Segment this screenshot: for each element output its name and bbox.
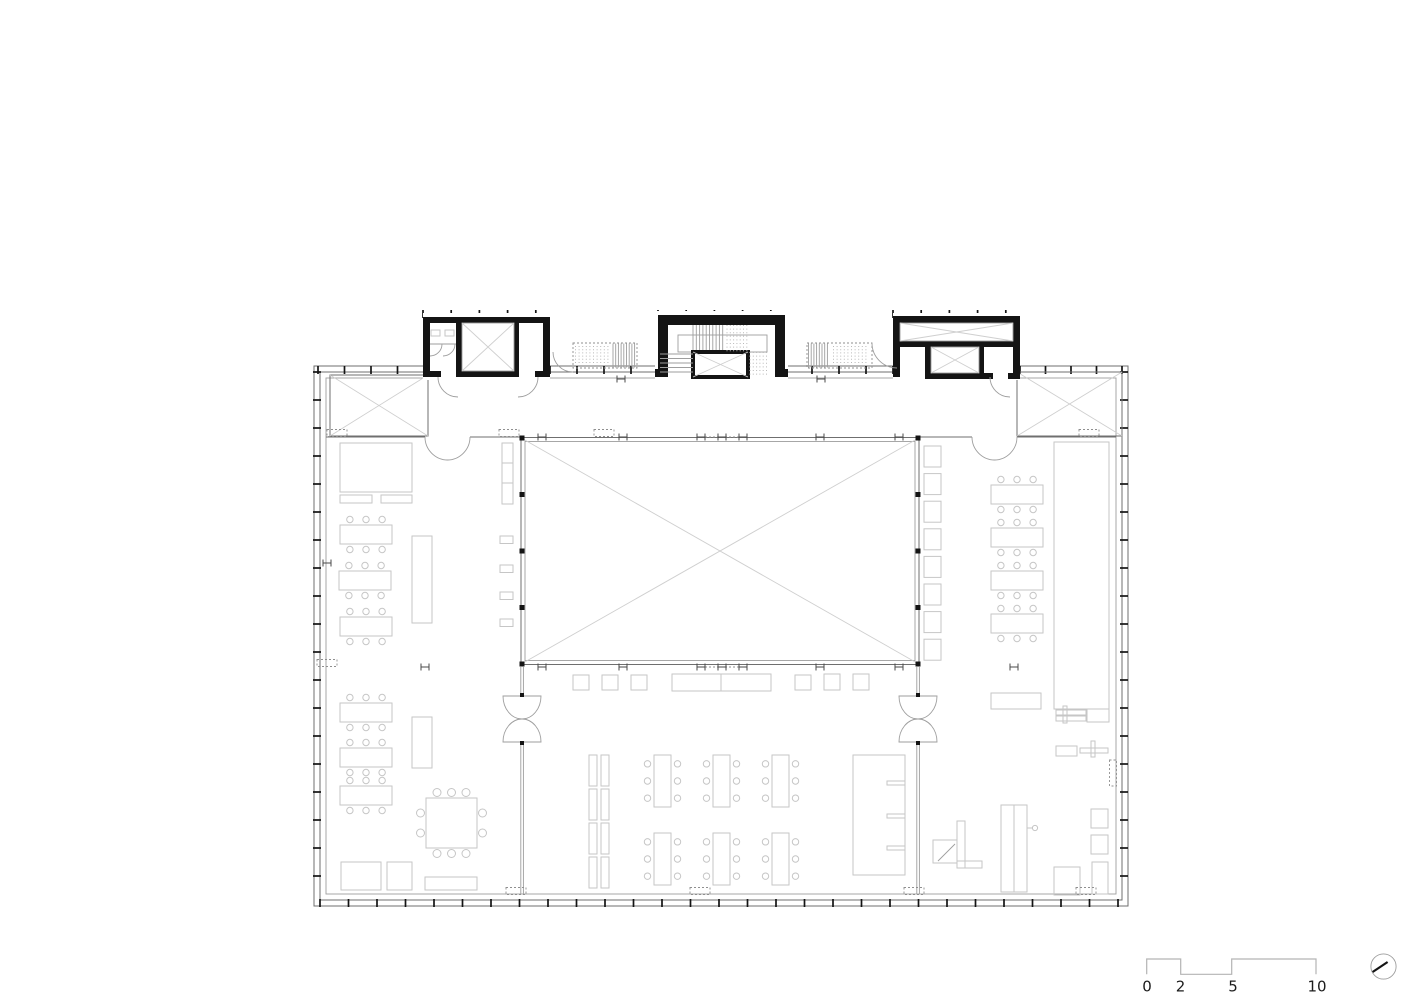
table-with-chairs <box>340 777 392 813</box>
scale-label-0: 0 <box>1142 978 1152 996</box>
double-door-right-partition <box>899 696 937 742</box>
door-post-squares <box>520 693 920 745</box>
desk-cluster <box>703 833 739 885</box>
stair-core-left <box>423 313 550 380</box>
table-with-chairs <box>340 608 392 644</box>
elevator-middle <box>693 352 748 377</box>
stair-core-middle <box>655 311 788 380</box>
floor-plan-page: 0 2 5 10 <box>0 0 1414 1000</box>
north-arrow-icon <box>1371 954 1396 979</box>
facade-mullion-ticks <box>313 310 1128 907</box>
study-desk-clusters <box>644 755 798 885</box>
equipment-bench-mid <box>1080 741 1108 757</box>
scale-label-2: 2 <box>1176 978 1186 996</box>
corner-room-left <box>330 375 428 436</box>
desk-cluster <box>762 755 798 807</box>
corner-workstation <box>933 821 982 868</box>
scale-label-5: 5 <box>1228 978 1238 996</box>
desk-cluster <box>703 755 739 807</box>
square-meeting-table <box>417 789 487 858</box>
workshop-counter <box>853 755 905 875</box>
partition-panels <box>589 755 609 888</box>
double-door-right-wing <box>972 437 1017 460</box>
interior-walls <box>326 437 1116 894</box>
facade-shell <box>314 314 1128 906</box>
scale-bar: 0 2 5 10 <box>1142 959 1326 996</box>
table-with-chairs <box>339 562 391 598</box>
desk-cluster <box>644 755 680 807</box>
table-with-chairs <box>991 605 1043 641</box>
table-with-chairs <box>340 516 392 552</box>
atrium <box>521 437 919 667</box>
desk-cluster <box>762 833 798 885</box>
corner-room-right <box>1017 372 1122 436</box>
right-wing-furniture <box>933 442 1109 895</box>
table-with-chairs <box>340 694 392 730</box>
table-with-chairs <box>991 519 1043 555</box>
beam-joint-markers <box>317 430 1117 895</box>
double-door-left-partition <box>503 696 541 742</box>
desk-cluster <box>644 833 680 885</box>
stair-core-right <box>893 313 1020 380</box>
floor-plan-drawing: 0 2 5 10 <box>0 0 1414 1000</box>
table-with-chairs <box>991 476 1043 512</box>
center-furniture <box>573 674 905 875</box>
display-panel-wall <box>1001 805 1038 892</box>
double-door-left-wing <box>425 437 470 460</box>
table-with-chairs <box>340 739 392 775</box>
scale-bar-line <box>1147 959 1316 974</box>
wall-shelves <box>500 536 513 627</box>
group-tables-with-chairs <box>339 476 1043 813</box>
atrium-cross <box>523 439 917 663</box>
locker-strip <box>924 446 941 660</box>
table-with-chairs <box>991 562 1043 598</box>
scale-label-10: 10 <box>1307 978 1326 996</box>
